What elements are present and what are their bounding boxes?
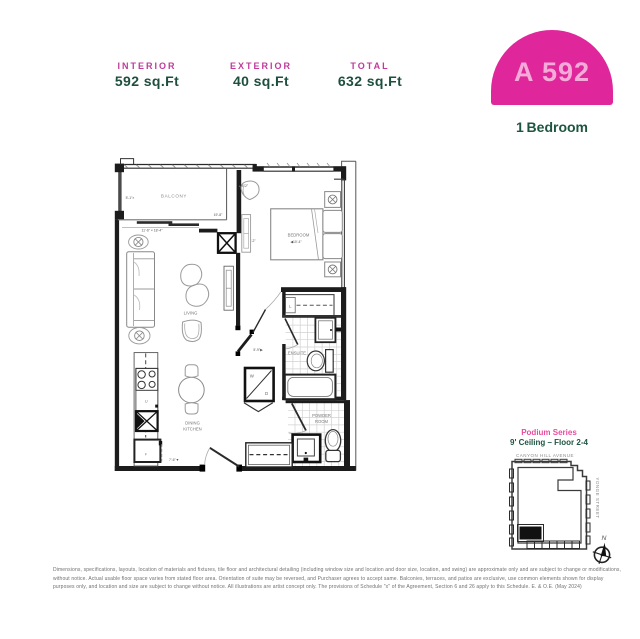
svg-text:DINING: DINING	[185, 421, 200, 426]
svg-text:CANYON HILL AVENUE: CANYON HILL AVENUE	[516, 453, 574, 458]
svg-text:KITCHEN: KITCHEN	[183, 426, 201, 431]
svg-text:▲9'-2": ▲9'-2"	[238, 184, 249, 188]
svg-text:D: D	[265, 391, 268, 396]
svg-text:ROOM: ROOM	[315, 419, 329, 424]
svg-text:LIVING: LIVING	[184, 310, 198, 315]
svg-text:19'-8": 19'-8"	[214, 213, 223, 217]
svg-text:YONGE STREET: YONGE STREET	[595, 477, 600, 518]
svg-text:5'-1"×: 5'-1"×	[126, 196, 135, 200]
svg-text:U: U	[145, 399, 148, 404]
svg-text:BEDROOM: BEDROOM	[288, 233, 310, 238]
svg-text:N: N	[602, 535, 607, 542]
svg-text:7'-6"▼: 7'-6"▼	[169, 458, 179, 462]
svg-text:POWDER: POWDER	[312, 413, 331, 418]
svg-text:5'-9"▶: 5'-9"▶	[253, 348, 263, 352]
svg-text:◀10'-4": ◀10'-4"	[290, 240, 302, 244]
svg-text:11'-6" × 18'-4": 11'-6" × 18'-4"	[142, 228, 164, 232]
svg-text:BALCONY: BALCONY	[161, 194, 187, 199]
svg-text:ENSUITE: ENSUITE	[288, 351, 306, 356]
